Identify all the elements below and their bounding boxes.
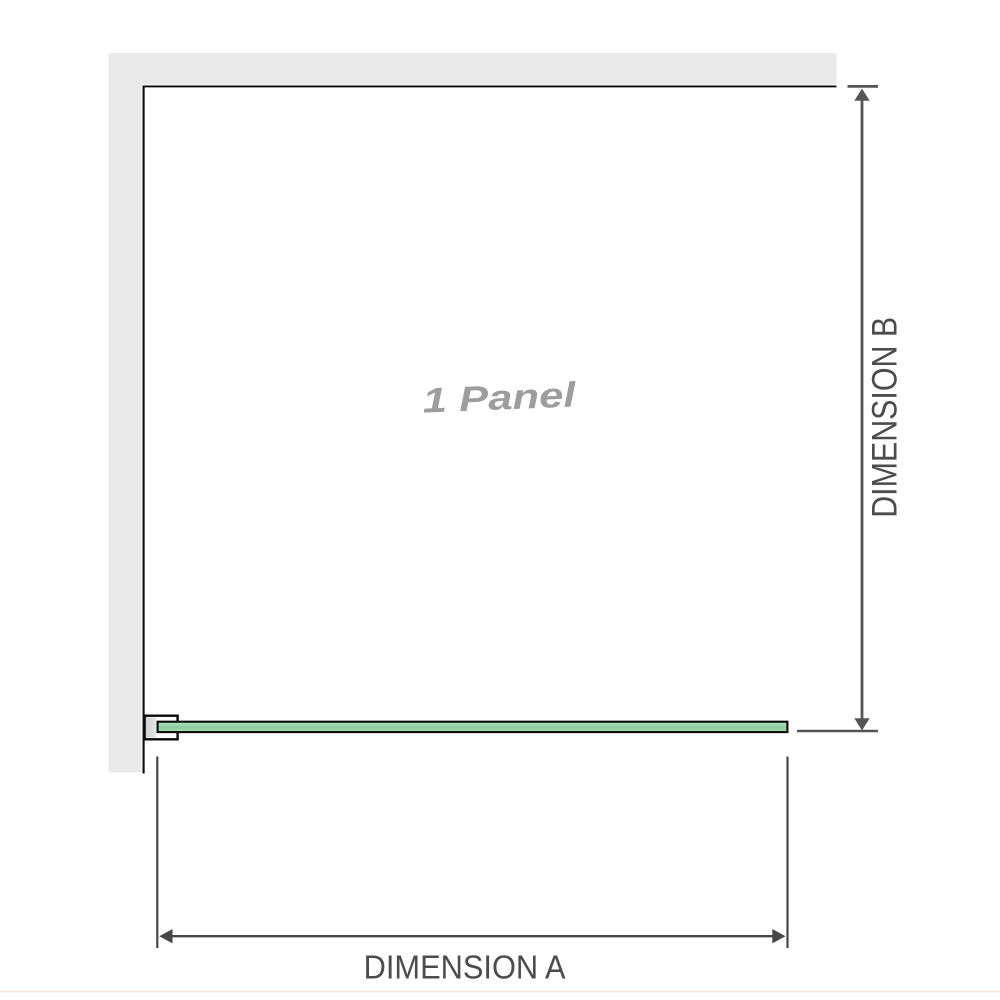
svg-text:DIMENSION B: DIMENSION B [865,317,904,518]
svg-text:1 Panel: 1 Panel [422,375,578,420]
svg-text:DIMENSION A: DIMENSION A [364,948,566,985]
